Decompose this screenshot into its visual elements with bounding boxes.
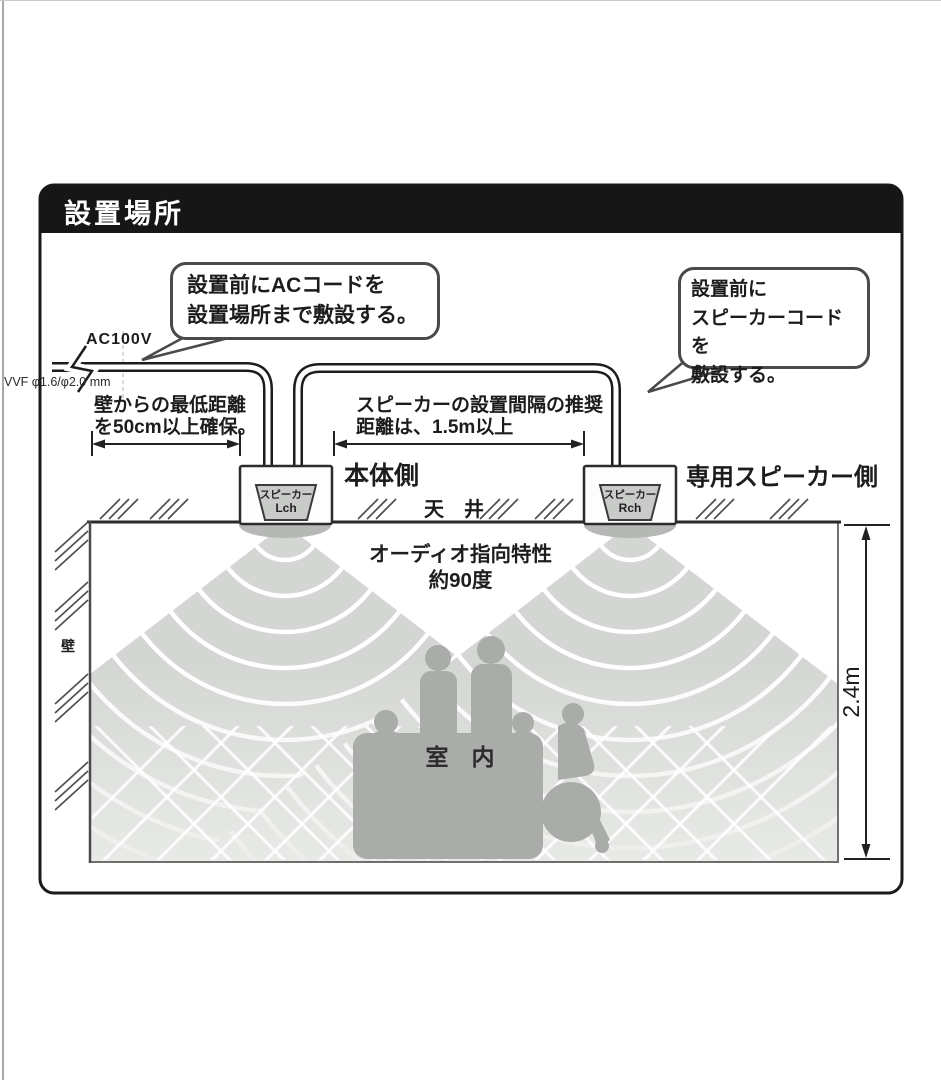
- callout-speaker-line1: 設置前に: [691, 276, 857, 305]
- callout-speaker-line2: スピーカーコードを: [691, 305, 857, 362]
- speaker-lch-line1: スピーカー: [249, 489, 323, 501]
- page-title: 設置場所: [64, 192, 184, 231]
- speaker-rch-label: スピーカー Rch: [593, 489, 667, 515]
- wall-distance-line2: を50cm以上確保。: [94, 417, 257, 439]
- dedicated-speaker-side-label: 専用スピーカー側: [686, 457, 878, 492]
- speaker-lch-line2: Lch: [249, 501, 323, 515]
- wall-label: 壁: [61, 636, 75, 656]
- cable-spec-label: VVF φ1.6/φ2.0 mm: [4, 375, 111, 389]
- directivity-line2: 約90度: [358, 568, 563, 594]
- callout-speaker-line3: 敷設する。: [691, 362, 857, 391]
- main-unit-side-label: 本体側: [344, 456, 419, 492]
- ceiling-label: 天 井: [424, 493, 484, 522]
- callout-ac-line1: 設置前にACコードを: [187, 271, 423, 301]
- speaker-lch-label: スピーカー Lch: [249, 489, 323, 515]
- directivity-line1: オーディオ指向特性: [358, 542, 563, 568]
- speaker-spacing-note: スピーカーの設置間隔の推奨 距離は、1.5m以上: [356, 395, 603, 439]
- room-label: 室 内: [395, 738, 525, 772]
- callout-speaker-cord: 設置前に スピーカーコードを 敷設する。: [678, 267, 870, 369]
- wall-distance-note: 壁からの最低距離 を50cm以上確保。: [94, 395, 257, 439]
- room-height-label: 2.4m: [837, 652, 865, 732]
- manual-page: 設置場所 設置前にACコードを 設置場所まで敷設する。 設置前に スピーカーコー…: [0, 0, 941, 1080]
- callout-ac-cord: 設置前にACコードを 設置場所まで敷設する。: [170, 262, 440, 340]
- speaker-rch-line2: Rch: [593, 501, 667, 515]
- callout-ac-line2: 設置場所まで敷設する。: [187, 301, 423, 331]
- wall-distance-line1: 壁からの最低距離: [94, 395, 257, 417]
- speaker-spacing-line2: 距離は、1.5m以上: [356, 417, 603, 439]
- speaker-spacing-line1: スピーカーの設置間隔の推奨: [356, 395, 603, 417]
- ac-power-label: AC100V: [86, 331, 152, 349]
- installation-diagram: [0, 0, 941, 1080]
- directivity-note: オーディオ指向特性 約90度: [358, 542, 563, 594]
- speaker-rch-line1: スピーカー: [593, 489, 667, 501]
